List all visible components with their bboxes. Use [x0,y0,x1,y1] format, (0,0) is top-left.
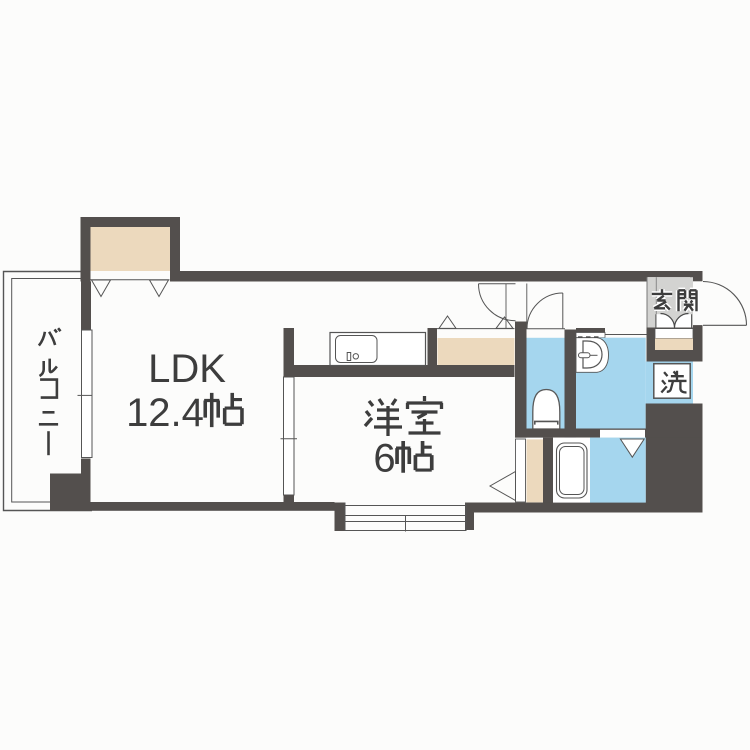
svg-text:LDK: LDK [148,347,226,391]
svg-text:12.4: 12.4 [126,391,204,435]
svg-text:6: 6 [373,437,395,481]
